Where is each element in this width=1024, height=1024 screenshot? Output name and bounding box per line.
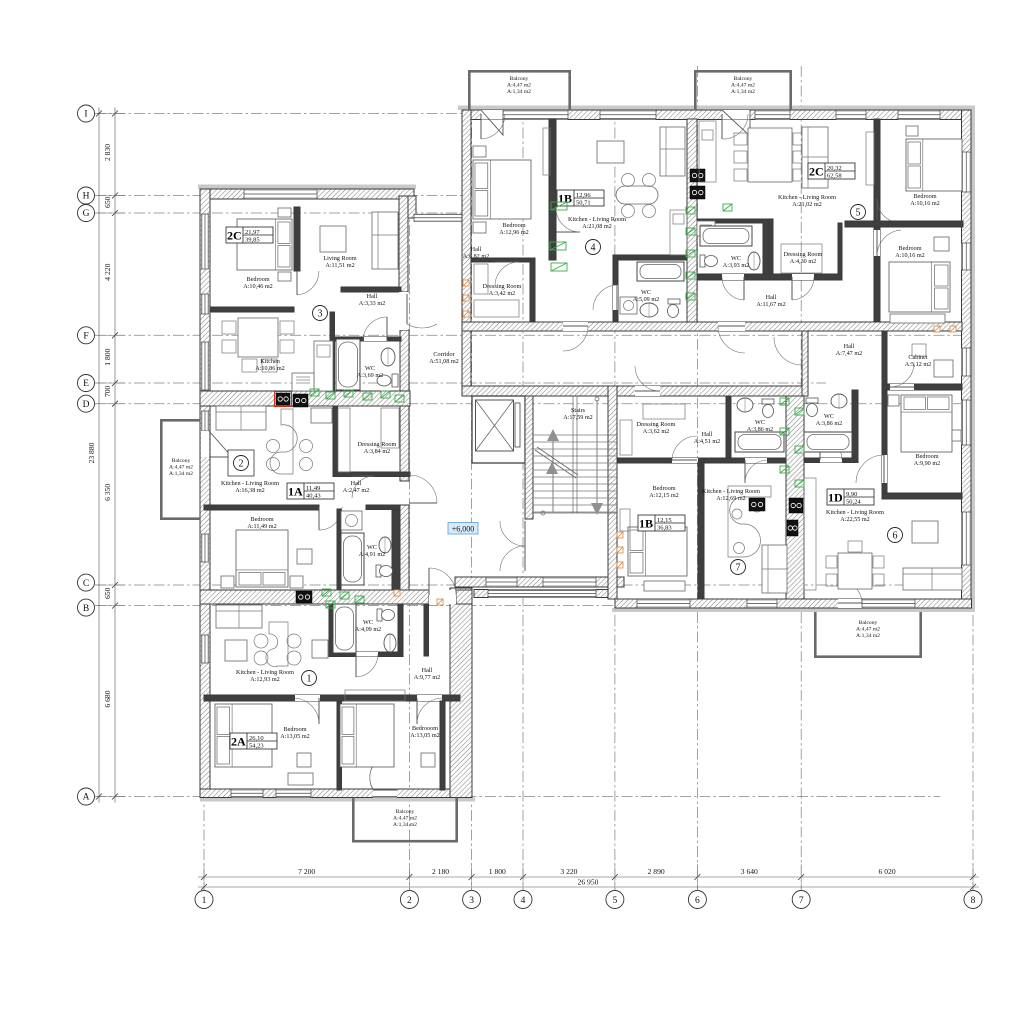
svg-text:A:10,86 m2: A:10,86 m2 — [255, 365, 285, 372]
svg-text:A:3,42 m2: A:3,42 m2 — [489, 290, 515, 297]
svg-text:40,43: 40,43 — [306, 492, 321, 499]
svg-text:A:51,08 m2: A:51,08 m2 — [429, 358, 459, 365]
svg-text:A:17,59 m2: A:17,59 m2 — [563, 414, 593, 421]
svg-text:A:3,86 m2: A:3,86 m2 — [816, 420, 842, 427]
svg-text:A:2,47 m2: A:2,47 m2 — [343, 487, 369, 494]
svg-text:Balcony: Balcony — [396, 809, 415, 815]
svg-text:A:22,55 m2: A:22,55 m2 — [840, 516, 870, 523]
svg-text:5: 5 — [613, 896, 618, 906]
svg-text:26,10: 26,10 — [249, 735, 264, 742]
svg-text:36,83: 36,83 — [657, 524, 672, 531]
svg-text:26 950: 26 950 — [578, 878, 599, 887]
svg-text:C: C — [83, 579, 89, 589]
svg-text:A:4,47 m2: A:4,47 m2 — [507, 82, 531, 88]
svg-text:A:11,67 m2: A:11,67 m2 — [756, 301, 785, 308]
svg-text:50,24: 50,24 — [846, 498, 861, 505]
svg-text:1A: 1A — [288, 485, 303, 499]
svg-text:A:9,77 m2: A:9,77 m2 — [414, 674, 440, 681]
svg-text:G: G — [83, 209, 90, 219]
svg-text:12,96: 12,96 — [576, 192, 591, 199]
svg-text:6 350: 6 350 — [103, 484, 112, 501]
svg-text:Balcony: Balcony — [510, 76, 529, 82]
svg-text:A:4,47 m2: A:4,47 m2 — [169, 464, 193, 470]
svg-text:2 830: 2 830 — [103, 144, 112, 161]
svg-text:2 180: 2 180 — [432, 867, 449, 876]
svg-text:A: A — [83, 793, 90, 803]
svg-text:4: 4 — [521, 896, 526, 906]
svg-text:650: 650 — [103, 196, 112, 208]
svg-text:A:4,47 m2: A:4,47 m2 — [731, 82, 755, 88]
svg-text:21,97: 21,97 — [245, 229, 260, 236]
svg-text:A:12,93 m2: A:12,93 m2 — [250, 676, 280, 683]
svg-text:6: 6 — [695, 896, 700, 906]
svg-text:3: 3 — [469, 896, 474, 906]
svg-text:A:3,93 m2: A:3,93 m2 — [723, 262, 749, 269]
svg-text:D: D — [83, 400, 90, 410]
svg-text:3 220: 3 220 — [560, 867, 577, 876]
svg-text:2C: 2C — [227, 229, 242, 243]
svg-text:8: 8 — [971, 896, 976, 906]
svg-text:A:4,47 m2: A:4,47 m2 — [393, 815, 417, 821]
svg-text:6 680: 6 680 — [103, 690, 112, 707]
svg-text:2: 2 — [239, 458, 244, 469]
svg-text:12,15: 12,15 — [657, 517, 672, 524]
svg-text:A:1,34 m2: A:1,34 m2 — [731, 89, 755, 95]
svg-text:A:10,16 m2: A:10,16 m2 — [895, 252, 925, 259]
svg-text:5: 5 — [856, 207, 861, 218]
svg-text:A:6,82 m2: A:6,82 m2 — [463, 253, 489, 260]
svg-text:2C: 2C — [809, 165, 824, 179]
svg-text:B: B — [83, 604, 89, 614]
svg-text:A:7,47 m2: A:7,47 m2 — [836, 350, 862, 357]
svg-text:A:4,30 m2: A:4,30 m2 — [790, 258, 816, 265]
svg-text:A:4,51 m2: A:4,51 m2 — [694, 438, 720, 445]
svg-text:7: 7 — [799, 896, 804, 906]
svg-text:7 200: 7 200 — [298, 867, 315, 876]
svg-text:2 890: 2 890 — [648, 867, 665, 876]
svg-text:1: 1 — [307, 673, 312, 684]
svg-text:A:12,15 m2: A:12,15 m2 — [649, 492, 679, 499]
svg-text:1D: 1D — [828, 491, 843, 505]
svg-text:Balcony: Balcony — [172, 458, 191, 464]
svg-text:F: F — [83, 332, 88, 342]
svg-text:A:12,69 m2: A:12,69 m2 — [716, 495, 746, 502]
svg-text:62,58: 62,58 — [827, 172, 842, 179]
svg-text:A:13,05 m2: A:13,05 m2 — [280, 733, 310, 740]
svg-text:Balcony: Balcony — [734, 76, 753, 82]
svg-text:3 640: 3 640 — [741, 867, 758, 876]
svg-text:4 220: 4 220 — [103, 263, 112, 280]
svg-text:2A: 2A — [231, 735, 246, 749]
svg-text:A:21,08 m2: A:21,08 m2 — [582, 223, 612, 230]
svg-text:A:4,09 m2: A:4,09 m2 — [355, 626, 381, 633]
svg-text:A:1,34 m2: A:1,34 m2 — [393, 822, 417, 828]
svg-text:6: 6 — [893, 530, 898, 541]
svg-text:700: 700 — [103, 385, 112, 397]
svg-text:54,23: 54,23 — [249, 742, 264, 749]
svg-text:A:21,02 m2: A:21,02 m2 — [792, 201, 822, 208]
svg-text:A:10,16 m2: A:10,16 m2 — [910, 200, 940, 207]
svg-text:9,90: 9,90 — [846, 491, 857, 498]
svg-text:7: 7 — [736, 562, 741, 573]
svg-text:E: E — [83, 379, 89, 389]
svg-text:A:9,90 m2: A:9,90 m2 — [914, 460, 940, 467]
svg-text:23 880: 23 880 — [87, 442, 96, 463]
svg-text:A:11,51 m2: A:11,51 m2 — [325, 262, 354, 269]
svg-text:A:1,34 m2: A:1,34 m2 — [856, 633, 880, 639]
svg-text:A:5,09 m2: A:5,09 m2 — [633, 296, 659, 303]
svg-text:A:3,33 m2: A:3,33 m2 — [359, 300, 385, 307]
svg-text:A:16,38 m2: A:16,38 m2 — [235, 487, 265, 494]
svg-text:H: H — [83, 192, 90, 202]
svg-text:1 800: 1 800 — [103, 348, 112, 365]
svg-text:Balcony: Balcony — [859, 620, 878, 626]
svg-text:A:1,34 m2: A:1,34 m2 — [507, 89, 531, 95]
svg-text:A:3,84 m2: A:3,84 m2 — [364, 448, 390, 455]
svg-text:A:3,86 m2: A:3,86 m2 — [747, 426, 773, 433]
svg-text:A:10,46 m2: A:10,46 m2 — [243, 283, 273, 290]
svg-text:A:11,49 m2: A:11,49 m2 — [247, 523, 276, 530]
svg-text:A:12,96 m2: A:12,96 m2 — [499, 229, 529, 236]
svg-text:1: 1 — [202, 896, 207, 906]
svg-text:1B: 1B — [639, 517, 653, 531]
svg-text:A:4,47 m2: A:4,47 m2 — [856, 626, 880, 632]
svg-text:I: I — [84, 110, 87, 120]
svg-text:A:13,05 m2: A:13,05 m2 — [410, 732, 440, 739]
svg-text:A:1,34 m2: A:1,34 m2 — [169, 471, 193, 477]
svg-text:1 800: 1 800 — [489, 867, 506, 876]
svg-text:+6,000: +6,000 — [452, 525, 475, 534]
svg-text:650: 650 — [103, 587, 112, 599]
svg-text:A:5,12 m2: A:5,12 m2 — [905, 361, 931, 368]
svg-text:50,71: 50,71 — [576, 199, 591, 206]
svg-text:3: 3 — [318, 308, 323, 319]
svg-text:6 020: 6 020 — [879, 867, 896, 876]
svg-text:A:4,91 m2: A:4,91 m2 — [359, 551, 385, 558]
svg-text:39,85: 39,85 — [245, 236, 260, 243]
svg-text:A:3,69 m2: A:3,69 m2 — [357, 372, 383, 379]
svg-text:2: 2 — [407, 896, 412, 906]
svg-text:20,32: 20,32 — [827, 165, 842, 172]
svg-text:A:3,62 m2: A:3,62 m2 — [643, 428, 669, 435]
svg-text:11,49: 11,49 — [306, 485, 320, 492]
svg-text:4: 4 — [591, 242, 596, 253]
